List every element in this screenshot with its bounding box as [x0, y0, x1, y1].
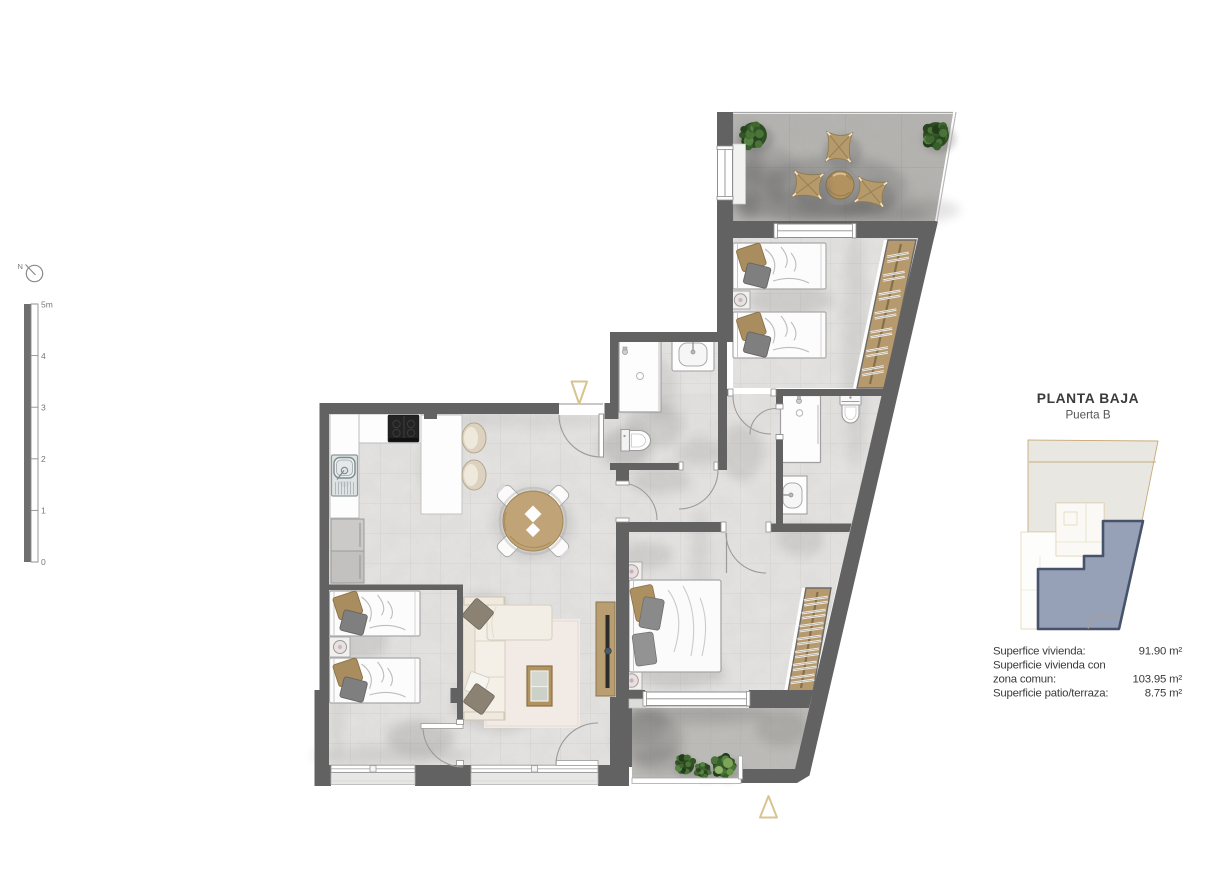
svg-text:1: 1	[41, 506, 46, 516]
svg-text:N: N	[18, 262, 23, 271]
svg-text:Superficie patio/terraza:: Superficie patio/terraza:	[993, 688, 1108, 700]
svg-text:zona comun:: zona comun:	[993, 674, 1056, 686]
svg-text:5m: 5m	[41, 300, 53, 310]
svg-text:103.95 m²: 103.95 m²	[1133, 674, 1183, 686]
svg-text:4: 4	[41, 351, 46, 361]
svg-text:91.90 m²: 91.90 m²	[1139, 646, 1183, 658]
svg-text:PLANTA BAJA: PLANTA BAJA	[1037, 391, 1139, 406]
svg-text:Superficie vivienda con: Superficie vivienda con	[993, 660, 1106, 672]
svg-text:Superfice vivienda:: Superfice vivienda:	[993, 646, 1085, 658]
svg-text:2: 2	[41, 454, 46, 464]
svg-text:8.75 m²: 8.75 m²	[1145, 688, 1183, 700]
svg-text:3: 3	[41, 403, 46, 413]
svg-text:Puerta B: Puerta B	[1065, 409, 1110, 422]
svg-text:0: 0	[41, 557, 46, 567]
